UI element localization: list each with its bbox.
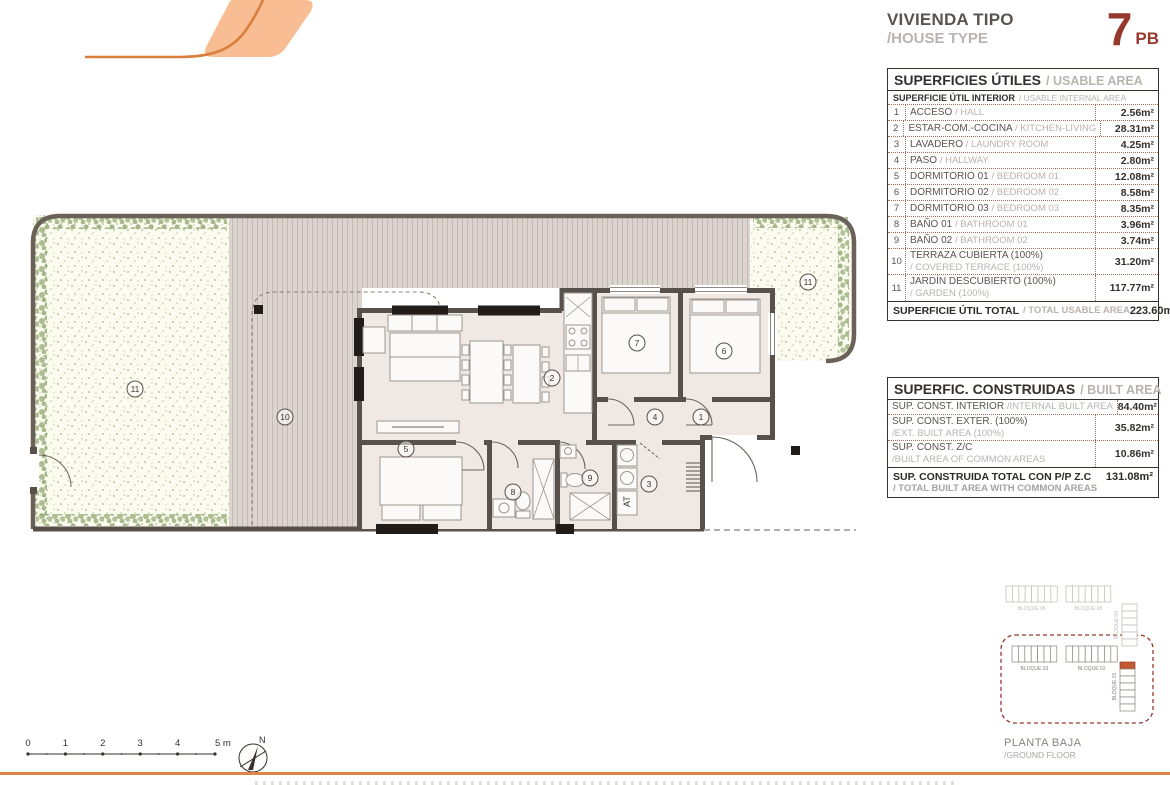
unit bbox=[1012, 586, 1018, 602]
row-value: 2.80m² bbox=[1095, 153, 1158, 168]
north-compass: N bbox=[239, 735, 267, 772]
row-name: SUP. CONST. Z/C/BUILT AREA OF COMMON ARE… bbox=[888, 441, 1095, 466]
usable-row-5: 5DORMITORIO 01 / BEDROOM 0112.08m² bbox=[888, 169, 1158, 185]
built-table-total: SUP. CONSTRUIDA TOTAL CON P/P Z.C / TOTA… bbox=[888, 467, 1158, 497]
unit bbox=[1120, 669, 1135, 676]
unit bbox=[1018, 646, 1024, 662]
room-number-11: 11 bbox=[804, 277, 813, 287]
row-value: 28.31m² bbox=[1100, 121, 1158, 136]
unit-number: 7 bbox=[1107, 10, 1133, 49]
row-value: 4.25m² bbox=[1095, 137, 1158, 152]
built-total-en: / TOTAL BUILT AREA WITH COMMON AREAS bbox=[893, 483, 1153, 494]
usable-subtitle-en: / USABLE INTERNAL AREA bbox=[1019, 93, 1126, 103]
row-name: ESTAR-COM.-COCINA / KITCHEN-LIVING bbox=[904, 121, 1100, 136]
north-label: N bbox=[259, 735, 266, 745]
built-total-value: 131.08m² bbox=[1106, 471, 1153, 483]
unit bbox=[1044, 586, 1050, 602]
room-number-8: 8 bbox=[511, 487, 516, 497]
built-table-rows: SUP. CONST. INTERIOR /INTERNAL BUILT ARE… bbox=[888, 400, 1158, 467]
scale-ticks: 012345 m bbox=[25, 738, 231, 756]
scale-label-2: 2 bbox=[100, 738, 105, 749]
row-name: LAVADERO / LAUNDRY ROOM bbox=[906, 137, 1095, 152]
row-name: DORMITORIO 01 / BEDROOM 01 bbox=[906, 169, 1095, 184]
built-table-header: SUPERFIC. CONSTRUIDAS / BUILT AREA bbox=[888, 378, 1158, 400]
dining-table bbox=[470, 341, 503, 403]
usable-row-1: 1ACCESO / HALL2.56m² bbox=[888, 105, 1158, 121]
site-plan-caption-es: PLANTA BAJA bbox=[1004, 737, 1081, 750]
cropped-footer-text bbox=[255, 781, 955, 785]
hedge-bottom bbox=[36, 514, 227, 526]
scale-tick bbox=[139, 752, 142, 755]
unit bbox=[1092, 646, 1098, 662]
bed-bedroom-02 bbox=[690, 299, 760, 373]
unit bbox=[1051, 586, 1057, 602]
site-plan: 87654321BLOQUE 067654321BLOQUE 05654321B… bbox=[996, 572, 1166, 732]
north-needle bbox=[248, 746, 258, 770]
column bbox=[254, 305, 263, 314]
unit bbox=[1120, 697, 1135, 704]
usable-row-4: 4PASO / HALLWAY2.80m² bbox=[888, 153, 1158, 169]
built-area-table: SUPERFIC. CONSTRUIDAS / BUILT AREA SUP. … bbox=[887, 377, 1159, 498]
usable-row-10: 10TERRAZA CUBIERTA (100%)/ COVERED TERRA… bbox=[888, 249, 1158, 275]
unit bbox=[1092, 586, 1098, 602]
unit-floor: PB bbox=[1135, 29, 1159, 49]
bloque-06-label: BLOQUE 06 bbox=[1018, 606, 1046, 612]
scale-tick bbox=[101, 752, 104, 755]
usable-row-2: 2ESTAR-COM.-COCINA / KITCHEN-LIVING28.31… bbox=[888, 121, 1158, 137]
unit bbox=[1066, 586, 1072, 602]
unit bbox=[1025, 586, 1031, 602]
brochure-page: VIVIENDA TIPO /HOUSE TYPE 7 PB SUPERFICI… bbox=[0, 0, 1170, 785]
footer-accent-line bbox=[0, 772, 1170, 775]
unit bbox=[1050, 646, 1056, 662]
unit bbox=[1122, 604, 1137, 611]
garden-left bbox=[33, 215, 230, 529]
scale-half-tick bbox=[195, 753, 197, 755]
unit bbox=[1122, 611, 1137, 618]
row-number: 11 bbox=[888, 275, 906, 300]
row-value: 2.56m² bbox=[1095, 105, 1158, 120]
usable-table-total: SUPERFICIE ÚTIL TOTAL / TOTAL USABLE ARE… bbox=[888, 301, 1158, 320]
row-number: 4 bbox=[888, 153, 906, 168]
unit bbox=[1104, 646, 1110, 662]
room-number-1: 1 bbox=[699, 412, 704, 422]
row-value: 12.08m² bbox=[1095, 169, 1158, 184]
unit bbox=[1122, 625, 1137, 632]
unit bbox=[1044, 646, 1050, 662]
scale-tick bbox=[64, 752, 67, 755]
bloque-04-label: BLOQUE 04 bbox=[1114, 611, 1120, 639]
scale-label-1: 1 bbox=[63, 738, 68, 749]
house-type-title-es: VIVIENDA TIPO bbox=[887, 10, 1014, 30]
room-number-5: 5 bbox=[404, 444, 409, 454]
unit bbox=[1079, 646, 1085, 662]
unit bbox=[1038, 586, 1044, 602]
row-number: 1 bbox=[888, 105, 906, 120]
unit bbox=[1098, 646, 1104, 662]
bloque-01-label: BLOQUE 01 bbox=[1112, 672, 1118, 700]
scale-half-tick bbox=[83, 753, 85, 755]
scale-half-tick bbox=[46, 753, 48, 755]
bloque-06: 87654321BLOQUE 06 bbox=[1006, 586, 1057, 612]
row-name: DORMITORIO 03 / BEDROOM 03 bbox=[906, 201, 1095, 216]
unit bbox=[1032, 586, 1038, 602]
row-name: BAÑO 01 / BATHROOM 01 bbox=[906, 217, 1095, 232]
room-number-9: 9 bbox=[588, 473, 593, 483]
house-type-title-en: /HOUSE TYPE bbox=[887, 30, 1014, 47]
usable-subtitle-es: SUPERFICIE ÚTIL INTERIOR bbox=[893, 93, 1015, 103]
bloque-05: 7654321BLOQUE 05 bbox=[1066, 586, 1111, 612]
row-number: 9 bbox=[888, 233, 906, 248]
built-row-1: SUP. CONST. EXTER. (100%)/EXT. BUILT ARE… bbox=[888, 415, 1158, 441]
unit bbox=[1122, 632, 1137, 639]
row-value: 3.96m² bbox=[1095, 217, 1158, 232]
unit bbox=[1079, 586, 1085, 602]
unit bbox=[1072, 646, 1078, 662]
unit bbox=[1066, 646, 1072, 662]
unit bbox=[1120, 683, 1135, 690]
row-name: JARDÍN DESCUBIERTO (100%)/ GARDEN (100%) bbox=[906, 275, 1095, 300]
row-number: 3 bbox=[888, 137, 906, 152]
bloque-05-label: BLOQUE 05 bbox=[1075, 606, 1103, 612]
unit bbox=[1104, 586, 1110, 602]
site-plan-caption: PLANTA BAJA /GROUND FLOOR bbox=[1004, 737, 1081, 760]
usable-title-es: SUPERFICIES ÚTILES bbox=[894, 72, 1041, 88]
usable-row-7: 7DORMITORIO 03 / BEDROOM 038.35m² bbox=[888, 201, 1158, 217]
unit bbox=[1122, 618, 1137, 625]
bloque-03: 7654321BLOQUE 03 bbox=[1012, 646, 1057, 672]
usable-table-subheader: SUPERFICIE ÚTIL INTERIOR / USABLE INTERN… bbox=[888, 91, 1158, 105]
unit bbox=[1111, 646, 1117, 662]
row-value: 35.82m² bbox=[1095, 415, 1158, 440]
header: VIVIENDA TIPO /HOUSE TYPE 7 PB bbox=[887, 10, 1159, 49]
brand-logo bbox=[80, 0, 320, 62]
armchair bbox=[363, 327, 385, 353]
column bbox=[791, 446, 800, 455]
row-number: 6 bbox=[888, 185, 906, 200]
row-value: 10.86m² bbox=[1095, 441, 1158, 466]
unit bbox=[1098, 586, 1104, 602]
house-type-title: VIVIENDA TIPO /HOUSE TYPE bbox=[887, 10, 1014, 47]
built-title-en: / BUILT AREA bbox=[1080, 383, 1161, 397]
scale-tick bbox=[26, 752, 29, 755]
room-number-10: 10 bbox=[280, 412, 290, 422]
usable-title-en: / USABLE AREA bbox=[1046, 74, 1143, 88]
room-number-6: 6 bbox=[722, 346, 727, 356]
room-number-2: 2 bbox=[550, 373, 555, 383]
unit bbox=[1038, 646, 1044, 662]
row-number: 2 bbox=[888, 121, 904, 136]
scale-label-4: 4 bbox=[175, 738, 180, 749]
unit bbox=[1072, 586, 1078, 602]
scale-label-0: 0 bbox=[25, 738, 30, 749]
unit bbox=[1122, 639, 1137, 646]
row-value: 117.77m² bbox=[1095, 275, 1158, 300]
built-title-es: SUPERFIC. CONSTRUIDAS bbox=[894, 381, 1075, 397]
usable-table-header: SUPERFICIES ÚTILES / USABLE AREA bbox=[888, 69, 1158, 91]
usable-total-value: 223.60m² bbox=[1130, 305, 1170, 317]
built-row-0: SUP. CONST. INTERIOR /INTERNAL BUILT ARE… bbox=[888, 400, 1158, 415]
row-name: ACCESO / HALL bbox=[906, 105, 1095, 120]
row-name: DORMITORIO 02 / BEDROOM 02 bbox=[906, 185, 1095, 200]
kitchen-counter bbox=[564, 293, 592, 413]
unit bbox=[1012, 646, 1018, 662]
usable-total-en: / TOTAL USABLE AREA bbox=[1023, 305, 1130, 316]
row-value: 8.58m² bbox=[1095, 185, 1158, 200]
scale-label-5 m: 5 m bbox=[215, 738, 231, 749]
row-number: 7 bbox=[888, 201, 906, 216]
unit bbox=[1085, 586, 1091, 602]
usable-row-6: 6DORMITORIO 02 / BEDROOM 028.58m² bbox=[888, 185, 1158, 201]
unit bbox=[1025, 646, 1031, 662]
at-label: AT bbox=[622, 496, 632, 507]
row-number: 8 bbox=[888, 217, 906, 232]
unit bbox=[1006, 586, 1012, 602]
row-value: 8.35m² bbox=[1095, 201, 1158, 216]
built-row-2: SUP. CONST. Z/C/BUILT AREA OF COMMON ARE… bbox=[888, 441, 1158, 466]
row-name: TERRAZA CUBIERTA (100%)/ COVERED TERRACE… bbox=[906, 249, 1095, 274]
unit bbox=[1031, 646, 1037, 662]
room-number-7: 7 bbox=[635, 338, 640, 348]
usable-table-rows: 1ACCESO / HALL2.56m²2ESTAR-COM.-COCINA /… bbox=[888, 105, 1158, 301]
scale-tick bbox=[176, 752, 179, 755]
room-number-11: 11 bbox=[131, 384, 140, 394]
scale-half-tick bbox=[158, 753, 160, 755]
bloque-03-label: BLOQUE 03 bbox=[1021, 666, 1049, 672]
row-value: 31.20m² bbox=[1095, 249, 1158, 274]
sofa-back bbox=[388, 315, 462, 331]
row-name: SUP. CONST. EXTER. (100%)/EXT. BUILT ARE… bbox=[888, 415, 1095, 440]
row-number: 5 bbox=[888, 169, 906, 184]
bloque-02: 87654321BLOQUE 02 bbox=[1066, 646, 1117, 672]
scale-half-tick bbox=[121, 753, 123, 755]
unit bbox=[1120, 704, 1135, 711]
usable-row-8: 8BAÑO 01 / BATHROOM 013.96m² bbox=[888, 217, 1158, 233]
scale-tick bbox=[213, 752, 216, 755]
usable-row-11: 11JARDÍN DESCUBIERTO (100%)/ GARDEN (100… bbox=[888, 275, 1158, 300]
unit bbox=[1085, 646, 1091, 662]
usable-row-9: 9BAÑO 02 / BATHROOM 023.74m² bbox=[888, 233, 1158, 249]
row-name: PASO / HALLWAY bbox=[906, 153, 1095, 168]
room-number-4: 4 bbox=[653, 412, 658, 422]
hedge-top bbox=[36, 217, 227, 229]
usable-area-table: SUPERFICIES ÚTILES / USABLE AREA SUPERFI… bbox=[887, 68, 1159, 321]
site-plan-caption-en: /GROUND FLOOR bbox=[1004, 750, 1081, 760]
unit bbox=[1120, 676, 1135, 683]
floor-plan: 123456789101111AT bbox=[0, 185, 880, 557]
room-number-3: 3 bbox=[647, 479, 652, 489]
unit bbox=[1120, 690, 1135, 697]
unit-badge: 7 PB bbox=[1107, 10, 1159, 49]
highlighted-unit bbox=[1120, 662, 1135, 669]
bloque-04: 654321BLOQUE 04 bbox=[1114, 604, 1137, 646]
scale-label-3: 3 bbox=[138, 738, 143, 749]
kitchen-island bbox=[513, 345, 540, 403]
unit bbox=[1019, 586, 1025, 602]
usable-total-es: SUPERFICIE ÚTIL TOTAL bbox=[893, 305, 1019, 317]
row-number: 10 bbox=[888, 249, 906, 274]
row-value: 3.74m² bbox=[1095, 233, 1158, 248]
usable-row-3: 3LAVADERO / LAUNDRY ROOM4.25m² bbox=[888, 137, 1158, 153]
bloque-01: 654321BLOQUE 01 bbox=[1112, 662, 1135, 711]
row-name: SUP. CONST. INTERIOR /INTERNAL BUILT ARE… bbox=[888, 400, 1117, 414]
bloque-02-label: BLOQUE 02 bbox=[1078, 666, 1106, 672]
row-name: BAÑO 02 / BATHROOM 02 bbox=[906, 233, 1095, 248]
row-value: 84.40m² bbox=[1117, 400, 1161, 414]
